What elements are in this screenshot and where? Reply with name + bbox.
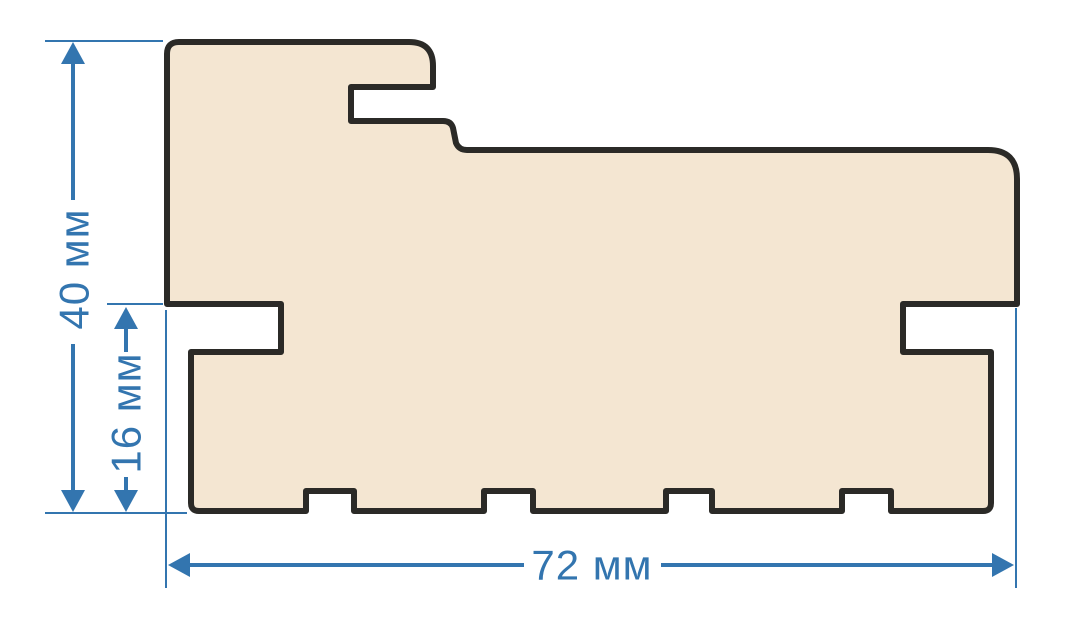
door-frame-profile-diagram: 40 мм 16 мм 72 мм	[0, 0, 1066, 628]
diagram-canvas: 40 мм 16 мм 72 мм	[0, 0, 1066, 628]
arrow-right-icon	[992, 553, 1014, 577]
arrow-up-icon	[61, 42, 85, 64]
arrow-left-icon	[168, 553, 190, 577]
dimension-height-label: 40 мм	[51, 208, 98, 329]
arrow-up-icon	[114, 307, 138, 329]
dimension-width-label: 72 мм	[531, 542, 652, 589]
dimension-rebate-label: 16 мм	[103, 352, 150, 473]
arrow-down-icon	[61, 490, 85, 512]
dimension-rebate-16: 16 мм	[103, 304, 164, 512]
arrow-down-icon	[114, 490, 138, 512]
door-frame-profile-shape	[167, 42, 1017, 511]
